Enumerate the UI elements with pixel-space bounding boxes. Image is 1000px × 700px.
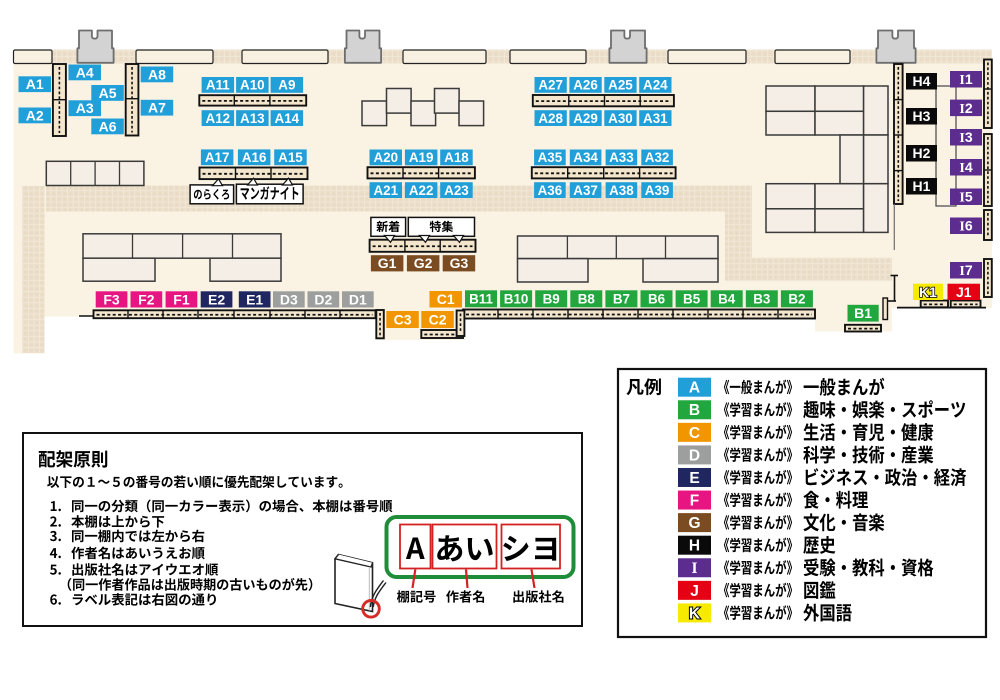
svg-text:A13: A13	[240, 111, 265, 126]
svg-text:B3: B3	[753, 292, 770, 307]
svg-text:A30: A30	[608, 111, 633, 126]
svg-text:A35: A35	[538, 150, 563, 165]
svg-text:A36: A36	[538, 183, 563, 198]
svg-text:A7: A7	[148, 100, 166, 116]
svg-text:J: J	[690, 583, 699, 600]
svg-text:I3: I3	[959, 129, 972, 146]
svg-text:H1: H1	[913, 178, 931, 194]
svg-text:A18: A18	[444, 150, 469, 165]
svg-text:A1: A1	[26, 76, 44, 92]
svg-text:A3: A3	[76, 100, 94, 116]
svg-text:A5: A5	[99, 85, 117, 101]
svg-text:A22: A22	[409, 183, 434, 198]
svg-text:E: E	[689, 470, 699, 487]
svg-text:B7: B7	[613, 292, 630, 307]
svg-text:I6: I6	[959, 218, 972, 235]
svg-text:A32: A32	[645, 150, 670, 165]
svg-text:I5: I5	[959, 189, 972, 206]
svg-text:A10: A10	[240, 78, 265, 93]
svg-text:I4: I4	[959, 159, 972, 176]
svg-text:A21: A21	[373, 183, 398, 198]
svg-text:H: H	[689, 538, 700, 555]
svg-text:A38: A38	[609, 183, 634, 198]
svg-text:G1: G1	[378, 255, 397, 271]
svg-text:H3: H3	[913, 108, 931, 124]
svg-text:A33: A33	[609, 150, 634, 165]
svg-text:C2: C2	[429, 311, 447, 327]
svg-text:H2: H2	[913, 145, 931, 161]
svg-text:A4: A4	[76, 64, 94, 80]
svg-text:D3: D3	[280, 291, 298, 307]
svg-text:A20: A20	[373, 150, 398, 165]
svg-text:A: A	[689, 380, 700, 397]
svg-text:F1: F1	[173, 291, 190, 307]
svg-text:A28: A28	[538, 111, 563, 126]
svg-text:A11: A11	[206, 78, 230, 93]
svg-text:A25: A25	[608, 78, 633, 93]
svg-text:E2: E2	[208, 291, 225, 307]
svg-text:B: B	[689, 402, 700, 419]
svg-text:B4: B4	[718, 292, 736, 307]
svg-text:A12: A12	[206, 111, 231, 126]
svg-text:A34: A34	[573, 150, 598, 165]
svg-text:D2: D2	[314, 291, 332, 307]
svg-text:A26: A26	[573, 78, 598, 93]
svg-text:A39: A39	[645, 183, 670, 198]
svg-text:F3: F3	[103, 291, 120, 307]
svg-text:B5: B5	[683, 292, 701, 307]
svg-text:B2: B2	[788, 292, 805, 307]
svg-text:D: D	[689, 447, 700, 464]
svg-text:A16: A16	[242, 150, 267, 165]
svg-text:A8: A8	[148, 66, 166, 82]
svg-text:C1: C1	[437, 291, 455, 307]
svg-text:A31: A31	[643, 111, 668, 126]
svg-text:A23: A23	[444, 183, 469, 198]
svg-text:H4: H4	[913, 73, 931, 89]
svg-text:B9: B9	[543, 292, 560, 307]
svg-text:I1: I1	[959, 71, 972, 88]
svg-text:I2: I2	[959, 100, 972, 117]
svg-text:B11: B11	[469, 292, 493, 307]
svg-text:A37: A37	[573, 183, 598, 198]
svg-text:K1: K1	[919, 284, 937, 300]
svg-text:J1: J1	[956, 284, 972, 300]
svg-text:G2: G2	[414, 255, 433, 271]
svg-text:A6: A6	[99, 118, 117, 134]
svg-text:C3: C3	[394, 311, 412, 327]
svg-text:A15: A15	[278, 150, 303, 165]
svg-text:A2: A2	[26, 107, 44, 123]
svg-text:G: G	[688, 515, 700, 532]
svg-text:F: F	[690, 493, 699, 510]
svg-text:A14: A14	[275, 111, 300, 126]
svg-text:K: K	[689, 605, 701, 622]
svg-text:A24: A24	[643, 78, 668, 93]
svg-text:G3: G3	[450, 255, 469, 271]
svg-text:A27: A27	[538, 78, 563, 93]
svg-text:C: C	[689, 425, 700, 442]
svg-text:A19: A19	[409, 150, 434, 165]
svg-text:A17: A17	[205, 150, 230, 165]
svg-text:D1: D1	[349, 291, 367, 307]
svg-text:A29: A29	[573, 111, 598, 126]
svg-text:B1: B1	[854, 305, 872, 321]
svg-text:B6: B6	[648, 292, 665, 307]
svg-text:E1: E1	[246, 291, 263, 307]
svg-text:I: I	[691, 560, 697, 577]
svg-text:I7: I7	[959, 262, 972, 279]
svg-text:B10: B10	[504, 292, 529, 307]
svg-text:B8: B8	[578, 292, 596, 307]
svg-text:A9: A9	[278, 78, 295, 93]
svg-text:F2: F2	[138, 291, 155, 307]
